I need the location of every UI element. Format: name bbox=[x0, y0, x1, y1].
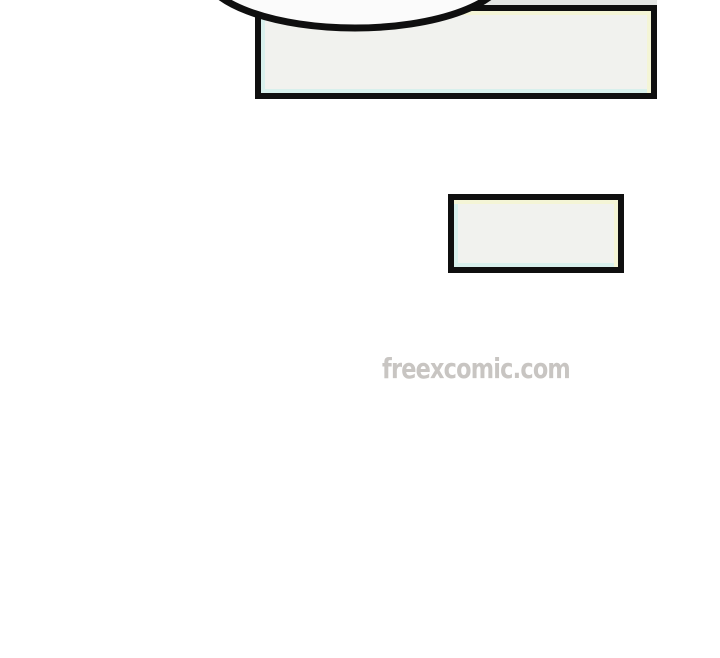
speech-bubble bbox=[150, 0, 560, 45]
comic-page: freexcomic.com bbox=[0, 0, 720, 658]
dialogue-box-small bbox=[448, 194, 624, 273]
watermark-text: freexcomic.com bbox=[364, 352, 588, 386]
